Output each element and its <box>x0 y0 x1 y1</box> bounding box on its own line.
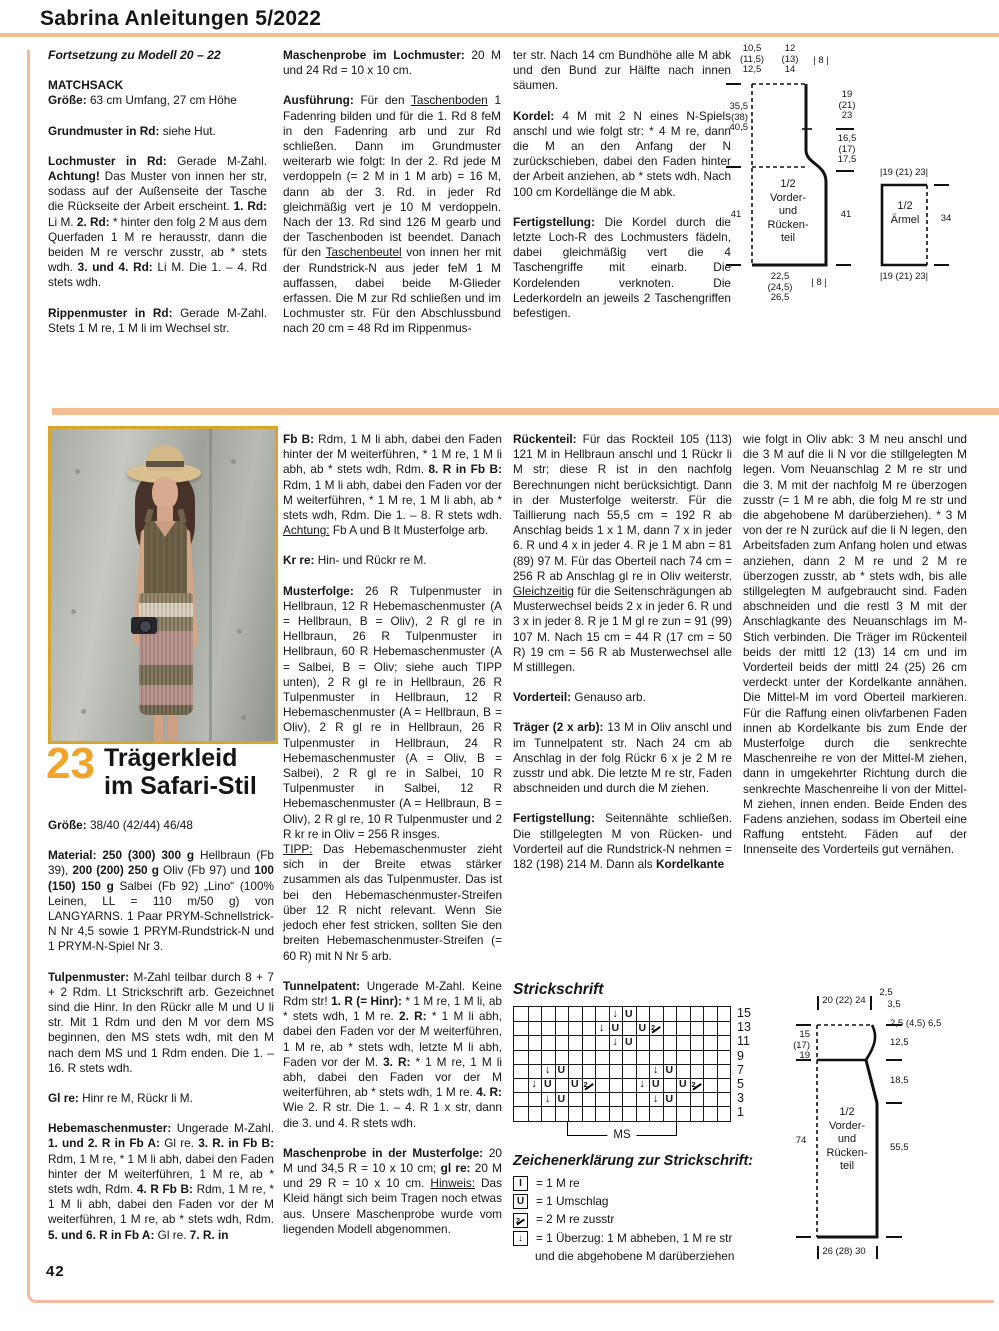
measure-top-strap-1: 2,5 <box>874 988 898 999</box>
chart-cell-empty <box>582 1050 597 1065</box>
measure-left-top: 15 (17) 19 <box>790 1030 810 1062</box>
model-face <box>152 477 178 509</box>
chart-cell-empty <box>717 1050 732 1065</box>
chart-cell-k2 <box>582 1078 597 1093</box>
measure-top-width: 20 (22) 24 <box>814 996 874 1007</box>
tick <box>796 1059 811 1061</box>
measure-right-2: 12,5 <box>890 1038 920 1049</box>
measure-top-strap-2: 3,5 <box>882 1000 906 1011</box>
tick <box>836 128 854 130</box>
schematic-matchsack: 10,5 (11,5) 12,5 12 (13) 14 | 8 | 35,5 (… <box>722 42 999 352</box>
top-column-2: Maschenprobe im Lochmuster: 20 M und 24 … <box>283 48 501 337</box>
chart-cell-empty <box>528 1007 543 1022</box>
paragraph-kr-re: Kr re: Hin- und Rückr re M. <box>283 553 502 568</box>
tick <box>836 170 854 172</box>
chart-cell-empty <box>582 1021 597 1036</box>
measure-right-3: 18,5 <box>890 1076 920 1087</box>
chart-cell-empty <box>568 1106 583 1121</box>
chart-cell-empty <box>649 1035 664 1050</box>
paragraph-hebemaschenmuster: Hebemaschenmuster: Ungerade M-Zahl. 1. u… <box>48 1121 274 1243</box>
measure-left-length: 74 <box>792 1136 810 1147</box>
legend-item-text: = 1 Überzug: 1 M abheben, 1 M re str <box>536 1231 732 1246</box>
legend-item: I= 1 M re <box>513 1176 734 1191</box>
chart-cell-empty <box>703 1007 718 1022</box>
chart-cell-empty <box>703 1050 718 1065</box>
top-column-3: ter str. Nach 14 cm Bundhöhe alle M abk … <box>513 48 731 321</box>
chart-cell-empty <box>717 1035 732 1050</box>
legend-item-text: = 1 Umschlag <box>536 1194 608 1209</box>
chart-row-label: 13 <box>737 1020 751 1034</box>
tick <box>836 264 851 266</box>
chart-cell-empty <box>514 1106 529 1121</box>
chart-cell-empty <box>663 1021 678 1036</box>
chart-cell-empty <box>663 1007 678 1022</box>
chart-cell-empty <box>541 1106 556 1121</box>
chart-cell-d: ↓ <box>609 1035 624 1050</box>
chart-cell-o: U <box>676 1078 691 1093</box>
legend-item-text: und die abgehobene M darüberziehen <box>535 1249 734 1264</box>
chart-cell-empty <box>541 1007 556 1022</box>
paragraph-rueckenteil: Rückenteil: Für das Rockteil 105 (113) 1… <box>513 432 732 675</box>
measure-right-4: 55,5 <box>890 1143 920 1154</box>
chart-cell-empty <box>609 1092 624 1107</box>
top-column-1: Fortsetzung zu Modell 20 – 22 MATCHSACK … <box>48 48 267 336</box>
chart-row-label: 15 <box>737 1006 751 1020</box>
paragraph-ausfuehrung: Ausführung: Für den Taschenboden 1 Faden… <box>283 93 501 336</box>
chart-cell-empty <box>717 1078 732 1093</box>
chart-row-label: 3 <box>737 1091 751 1105</box>
chart-cell-empty <box>568 1007 583 1022</box>
magazine-page: { "colors":{"accent_orange":"#f0a42c","r… <box>0 0 999 1331</box>
chart-cell-empty <box>555 1035 570 1050</box>
main-column-1: Größe: 38/40 (42/44) 46/48 Material: 250… <box>48 818 274 1243</box>
chart-cell-empty <box>703 1035 718 1050</box>
paragraph-tunnelpatent: Tunnelpatent: Ungerade M-Zahl. Keine Rdm… <box>283 979 502 1131</box>
chart-cell-k2 <box>690 1078 705 1093</box>
paragraph-gl-re: Gl re: Hinr re M, Rückr li M. <box>48 1091 274 1106</box>
measure-top-1: 10,5 (11,5) 12,5 <box>734 44 770 76</box>
chart-cell-empty <box>595 1050 610 1065</box>
model-title: Trägerkleid im Safari-Stil <box>104 744 257 800</box>
chart-cell-empty <box>514 1007 529 1022</box>
sleeve-measure-top: |19 (21) 23| <box>872 168 936 179</box>
ms-label: MS <box>607 1128 636 1143</box>
chart-cell-empty <box>555 1007 570 1022</box>
chart-cell-empty <box>514 1092 529 1107</box>
measure-right-2: 16,5 (17) 17,5 <box>832 134 862 166</box>
tick <box>886 1059 902 1061</box>
paragraph-fertigstellung-top: Fertigstellung: Die Kordel durch die let… <box>513 215 731 321</box>
chart-row-label: 5 <box>737 1077 751 1091</box>
chart-cell-empty <box>514 1050 529 1065</box>
chart-row-label: 7 <box>737 1063 751 1077</box>
paragraph-groesse: Größe: 38/40 (42/44) 46/48 <box>48 818 274 833</box>
legend-item: und die abgehobene M darüberziehen <box>535 1249 734 1264</box>
tick <box>726 83 741 85</box>
chart-cell-empty <box>541 1021 556 1036</box>
schematic-dress: 20 (22) 24 2,5 3,5 15 (17) 19 74 2,5 (4,… <box>790 988 999 1288</box>
header-rule <box>0 33 999 37</box>
tick <box>934 264 949 266</box>
measure-right-3: 41 <box>836 210 856 221</box>
chart-cell-empty <box>528 1050 543 1065</box>
knit-symbol-icon: I <box>513 1176 528 1191</box>
chart-cell-empty <box>690 1092 705 1107</box>
chart-cell-empty <box>555 1106 570 1121</box>
chart-cell-empty <box>582 1106 597 1121</box>
paragraph-maschenprobe: Maschenprobe im Lochmuster: 20 M und 24 … <box>283 48 501 78</box>
tick <box>796 1024 811 1026</box>
chart-row-numbers: 15131197531 <box>737 1006 751 1120</box>
sleeve-measure-bottom: |19 (21) 23| <box>872 272 936 283</box>
measure-right-1: 2,5 (4,5) 6,5 <box>890 1019 962 1030</box>
schematic-sleeve-label: 1/2 Ärmel <box>884 200 926 227</box>
section-title-matchsack: MATCHSACK <box>48 78 123 92</box>
ms-repeat-bracket: MS <box>567 1122 677 1136</box>
chart-cell-empty <box>568 1021 583 1036</box>
chart-cell-empty <box>717 1007 732 1022</box>
paragraph-tulpenmuster: Tulpenmuster: M-Zahl teilbar durch 8 + 7… <box>48 970 274 1076</box>
section-divider <box>52 408 999 415</box>
page-number: 42 <box>46 1264 65 1279</box>
yo-symbol-icon: U <box>513 1194 528 1209</box>
chart-cell-empty <box>649 1106 664 1121</box>
chart-cell-d: ↓ <box>528 1078 543 1093</box>
paragraph-lochmuster: Lochmuster in Rd: Gerade M-Zahl. Achtung… <box>48 154 267 291</box>
chart-cell-o: U <box>555 1092 570 1107</box>
chart-cell-empty <box>582 1007 597 1022</box>
chart-cell-empty <box>514 1021 529 1036</box>
chart-cell-empty <box>622 1078 637 1093</box>
chart-cell-empty <box>622 1092 637 1107</box>
paragraph-kordelkante: wie folgt in Oliv abk: 3 M neu anschl un… <box>743 432 967 858</box>
tick <box>726 264 741 266</box>
chart-cell-empty <box>595 1092 610 1107</box>
chart-cell-empty <box>568 1092 583 1107</box>
chart-cell-empty <box>609 1106 624 1121</box>
schematic-body-label: 1/2 Vorder- und Rücken- teil <box>754 178 822 246</box>
measure-right-1: 19 (21) 23 <box>834 90 860 122</box>
chart-cell-empty <box>514 1035 529 1050</box>
chart-row-label: 9 <box>737 1049 751 1063</box>
measure-bottom-width: 26 (28) 30 <box>814 1247 874 1258</box>
legend-item-text: = 1 M re <box>536 1176 580 1191</box>
paragraph-fertigstellung-main: Fertigstellung: Seitennähte schließen. D… <box>513 811 732 872</box>
chart-cell-empty <box>717 1106 732 1121</box>
chart-cell-empty <box>609 1078 624 1093</box>
chart-cell-empty <box>609 1050 624 1065</box>
chart-cell-d: ↓ <box>541 1092 556 1107</box>
chart-cell-empty <box>595 1064 610 1079</box>
chart-cell-d: ↓ <box>649 1092 664 1107</box>
chart-cell-empty <box>676 1007 691 1022</box>
paragraph-material: Material: 250 (300) 300 g Hellbraun (Fb … <box>48 848 274 954</box>
measure-top-2: 12 (13) 14 <box>774 44 806 76</box>
chart-cell-o: U <box>555 1064 570 1079</box>
tick <box>796 1236 811 1238</box>
chart-cell-empty <box>636 1050 651 1065</box>
k2-symbol-icon <box>513 1213 528 1228</box>
paragraph-traeger: Träger (2 x arb): 13 M in Oliv anschl un… <box>513 720 732 796</box>
chart-legend-title: Zeichenerklärung zur Strickschrift: <box>513 1154 753 1169</box>
chart-cell-empty <box>595 1035 610 1050</box>
measure-bottom-2: | 8 | <box>804 278 834 289</box>
chart-cell-empty <box>514 1078 529 1093</box>
chart-cell-k2 <box>649 1021 664 1036</box>
chart-cell-empty <box>568 1050 583 1065</box>
chart-cell-empty <box>636 1035 651 1050</box>
chart-cell-empty <box>622 1050 637 1065</box>
chart-cell-empty <box>703 1078 718 1093</box>
chart-legend-items: I= 1 M reU= 1 Umschlag= 2 M re zusstr↓= … <box>513 1176 734 1267</box>
chart-cell-empty <box>636 1106 651 1121</box>
legend-item: U= 1 Umschlag <box>513 1194 734 1209</box>
measure-left-2: 41 <box>726 210 746 221</box>
chart-cell-empty <box>717 1092 732 1107</box>
main-column-3: Rückenteil: Für das Rockteil 105 (113) 1… <box>513 432 732 872</box>
paragraph-tipp: TIPP: Das Hebemaschenmuster zieht sich i… <box>283 842 502 964</box>
chart-cell-o: U <box>663 1092 678 1107</box>
chart-cell-empty <box>582 1035 597 1050</box>
chart-cell-empty <box>636 1092 651 1107</box>
chart-cell-empty <box>676 1106 691 1121</box>
chart-cell-empty <box>676 1035 691 1050</box>
chart-cell-d: ↓ <box>595 1021 610 1036</box>
tick <box>886 1102 902 1104</box>
main-column-4: wie folgt in Oliv abk: 3 M neu anschl un… <box>743 432 967 858</box>
tick <box>934 184 949 186</box>
paragraph-size: Größe: 63 cm Umfang, 27 cm Höhe <box>48 93 267 108</box>
measure-top-3: | 8 | <box>806 56 836 67</box>
chart-cell-empty <box>528 1092 543 1107</box>
measure-bottom-1: 22,5 (24,5) 26,5 <box>760 272 800 304</box>
chart-cell-empty <box>528 1021 543 1036</box>
chart-cell-empty <box>622 1106 637 1121</box>
chart-cell-empty <box>676 1050 691 1065</box>
tick <box>876 1246 878 1259</box>
chart-cell-empty <box>528 1035 543 1050</box>
chart-cell-empty <box>568 1035 583 1050</box>
chart-cell-empty <box>514 1064 529 1079</box>
chart-cell-empty <box>609 1064 624 1079</box>
chart-cell-empty <box>582 1092 597 1107</box>
page-title: Sabrina Anleitungen 5/2022 <box>40 11 321 26</box>
chart-title: Strickschrift <box>513 982 603 997</box>
schematic-dress-label: 1/2 Vorder- und Rücken- teil <box>816 1106 878 1174</box>
chart-cell-empty <box>690 1035 705 1050</box>
legend-item: ↓= 1 Überzug: 1 M abheben, 1 M re str <box>513 1231 734 1246</box>
chart-row-label: 1 <box>737 1105 751 1119</box>
main-column-2: Fb B: Rdm, 1 M li abh, dabei den Faden h… <box>283 432 502 1237</box>
chart-cell-empty <box>595 1106 610 1121</box>
chart-cell-d: ↓ <box>636 1078 651 1093</box>
legend-item: = 2 M re zusstr <box>513 1212 734 1227</box>
chart-cell-empty <box>595 1078 610 1093</box>
chart-cell-empty <box>676 1092 691 1107</box>
paragraph-rippenmuster: Rippenmuster in Rd: Gerade M-Zahl. Stets… <box>48 306 267 336</box>
chart-cell-empty <box>703 1021 718 1036</box>
measure-left-1: 35,5 (38) 40,5 <box>722 102 748 134</box>
paragraph-vorderteil: Vorderteil: Genauso arb. <box>513 690 732 705</box>
chart-cell-empty <box>703 1064 718 1079</box>
chart-row-label: 11 <box>737 1034 751 1048</box>
legend-item-text: = 2 M re zusstr <box>536 1212 614 1227</box>
chart-cell-empty <box>541 1035 556 1050</box>
chart-cell-empty <box>663 1035 678 1050</box>
model-number: 23 <box>46 742 95 786</box>
chart-cell-o: U <box>622 1007 637 1022</box>
paragraph-bund: ter str. Nach 14 cm Bundhöhe alle M abk … <box>513 48 731 94</box>
chart-cell-empty <box>717 1021 732 1036</box>
chart-cell-empty <box>663 1106 678 1121</box>
chart-cell-o: U <box>636 1021 651 1036</box>
sleeve-measure-right: 34 <box>936 214 956 225</box>
paragraph-fb-b: Fb B: Rdm, 1 M li abh, dabei den Faden h… <box>283 432 502 538</box>
strickschrift-grid: ↓U↓UU↓U↓U↓U↓UU↓UU↓U↓U <box>513 1006 731 1122</box>
continuation-note: Fortsetzung zu Modell 20 – 22 <box>48 48 267 63</box>
chart-cell-empty <box>676 1021 691 1036</box>
chart-cell-empty <box>717 1064 732 1079</box>
paragraph-musterfolge: Musterfolge: 26 R Tulpenmuster in Hellbr… <box>283 584 502 842</box>
paragraph-kordel: Kordel: 4 M mit 2 N eines N-Spiels ansch… <box>513 109 731 200</box>
chart-cell-o: U <box>568 1078 583 1093</box>
tick <box>886 1236 902 1238</box>
wall-seam <box>209 429 212 741</box>
chart-cell-o: U <box>663 1064 678 1079</box>
model-photo <box>48 426 278 744</box>
chart-cell-empty <box>690 1007 705 1022</box>
chart-cell-empty <box>555 1021 570 1036</box>
slip-symbol-icon: ↓ <box>513 1231 528 1246</box>
chart-cell-empty <box>622 1064 637 1079</box>
paragraph-grundmuster: Grundmuster in Rd: siehe Hut. <box>48 124 267 139</box>
paragraph-maschenprobe-musterfolge: Maschenprobe in der Musterfolge: 20 M un… <box>283 1146 502 1237</box>
chart-cell-empty <box>528 1106 543 1121</box>
chart-cell-empty <box>690 1021 705 1036</box>
chart-cell-o: U <box>622 1035 637 1050</box>
chart-cell-empty <box>690 1050 705 1065</box>
chart-cell-empty <box>703 1092 718 1107</box>
chart-cell-empty <box>690 1106 705 1121</box>
chart-cell-empty <box>703 1106 718 1121</box>
tick <box>726 166 741 168</box>
